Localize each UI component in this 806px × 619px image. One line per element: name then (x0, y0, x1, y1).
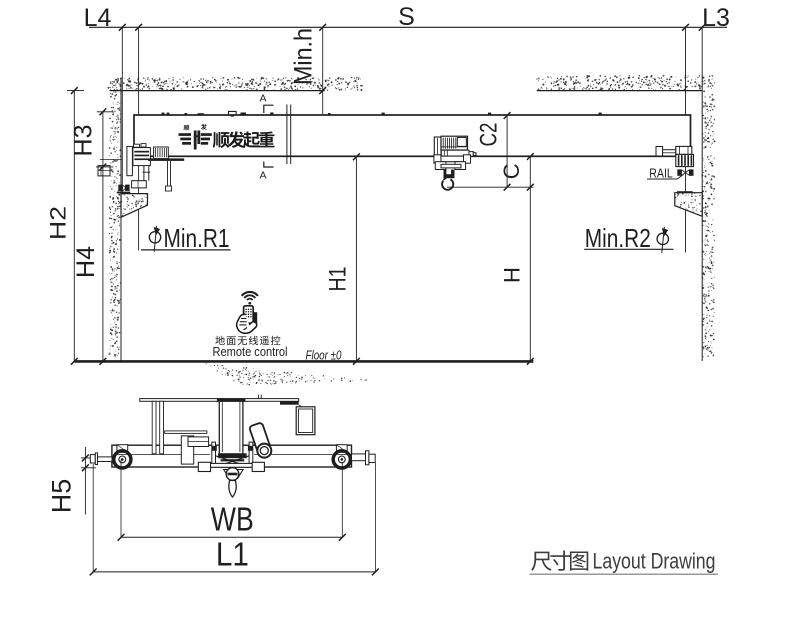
svg-text:H2: H2 (46, 206, 71, 240)
svg-text:A: A (259, 169, 266, 181)
svg-text:L3: L3 (702, 4, 730, 32)
svg-text:Min.R2: Min.R2 (585, 223, 651, 253)
svg-text:C: C (499, 163, 524, 179)
svg-text:Remote control: Remote control (213, 345, 288, 359)
svg-text:C2: C2 (476, 123, 503, 147)
svg-text:Min.R1: Min.R1 (164, 223, 230, 253)
svg-text:Min.h: Min.h (290, 28, 318, 85)
svg-text:L4: L4 (84, 4, 112, 32)
svg-text:A: A (259, 92, 266, 104)
svg-text:H1: H1 (325, 267, 352, 292)
svg-text:L1: L1 (216, 536, 249, 573)
svg-text:WB: WB (211, 501, 254, 538)
svg-text:H5: H5 (47, 479, 77, 514)
svg-text:S: S (398, 3, 415, 31)
svg-text:H4: H4 (72, 246, 100, 278)
svg-text:H: H (500, 267, 525, 283)
svg-text:Layout Drawing: Layout Drawing (593, 549, 716, 574)
svg-text:RAIL: RAIL (649, 166, 673, 180)
svg-text:H3: H3 (70, 125, 98, 157)
svg-text:Floor ±0: Floor ±0 (306, 348, 343, 363)
